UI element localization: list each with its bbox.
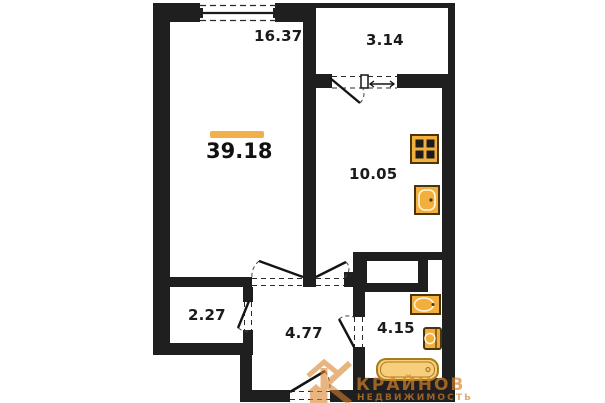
total-area-value: 39.18 <box>206 140 268 162</box>
balcony-area-label: 3.14 <box>366 31 404 49</box>
wall-closet-right-top <box>243 287 253 302</box>
balcony-door-arc <box>360 89 364 103</box>
wall-top-left-corner <box>170 3 200 22</box>
hallway-area-label: 4.77 <box>285 324 323 342</box>
window-end-block-right <box>273 8 279 18</box>
toilet-icon <box>424 328 441 349</box>
wall-balcony-top <box>316 3 455 8</box>
kitchen-door-dashes <box>316 279 344 286</box>
vent-shaft-inner <box>367 261 418 283</box>
wall-hall-top <box>153 277 252 287</box>
wall-closet-bottom <box>153 343 253 355</box>
kitchen-sink-icon <box>415 186 439 214</box>
walls <box>153 3 455 402</box>
balcony-door-leaf <box>330 78 360 103</box>
bathroom-area-label: 4.15 <box>377 319 415 337</box>
window-end-block-left <box>197 8 203 18</box>
wall-balcony-bottom-stub <box>316 74 332 88</box>
kitchen-area-label: 10.05 <box>349 165 397 183</box>
wall-balcony-right <box>448 3 455 88</box>
floor-plan-drawing <box>0 0 605 403</box>
balcony-window-frame <box>361 75 368 88</box>
stove-icon <box>411 135 438 163</box>
bathroom-door-leaf <box>339 319 354 347</box>
living-room-area-label: 16.37 <box>254 27 302 45</box>
wall-top-middle <box>275 3 316 22</box>
bathroom-door-arc <box>339 316 354 319</box>
kitchen-door-leaf <box>316 262 346 277</box>
living-door-dashes <box>252 279 303 286</box>
living-door-leaf <box>259 261 303 277</box>
living-door-arc <box>252 261 259 278</box>
bathroom-door-dashes <box>355 317 363 347</box>
bath-sink-icon <box>411 295 440 314</box>
wall-middle-vertical <box>303 22 316 287</box>
closet-door-leaf <box>238 301 249 328</box>
watermark: КРАЙНОВ НЕДВИЖИМОСТЬ <box>298 352 468 403</box>
closet-area-label: 2.27 <box>188 306 226 324</box>
wall-hall-bath-top <box>353 252 365 317</box>
wall-left <box>153 3 170 355</box>
wall-balcony-bottom-right <box>397 74 448 88</box>
watermark-subtitle: НЕДВИЖИМОСТЬ <box>357 393 473 403</box>
watermark-brand: КРАЙНОВ <box>356 375 465 395</box>
total-area-accent-bar <box>210 131 264 138</box>
wall-hall-top-stub <box>344 272 353 287</box>
balcony-window-arrow <box>370 81 394 87</box>
total-area: 39.18 <box>206 131 268 162</box>
wall-bottom-hall-left <box>240 390 290 402</box>
krainov-logo-icon <box>298 354 354 403</box>
floor-plan-page: 16.37 3.14 10.05 2.27 4.77 4.15 39.18 КР… <box>0 0 605 403</box>
